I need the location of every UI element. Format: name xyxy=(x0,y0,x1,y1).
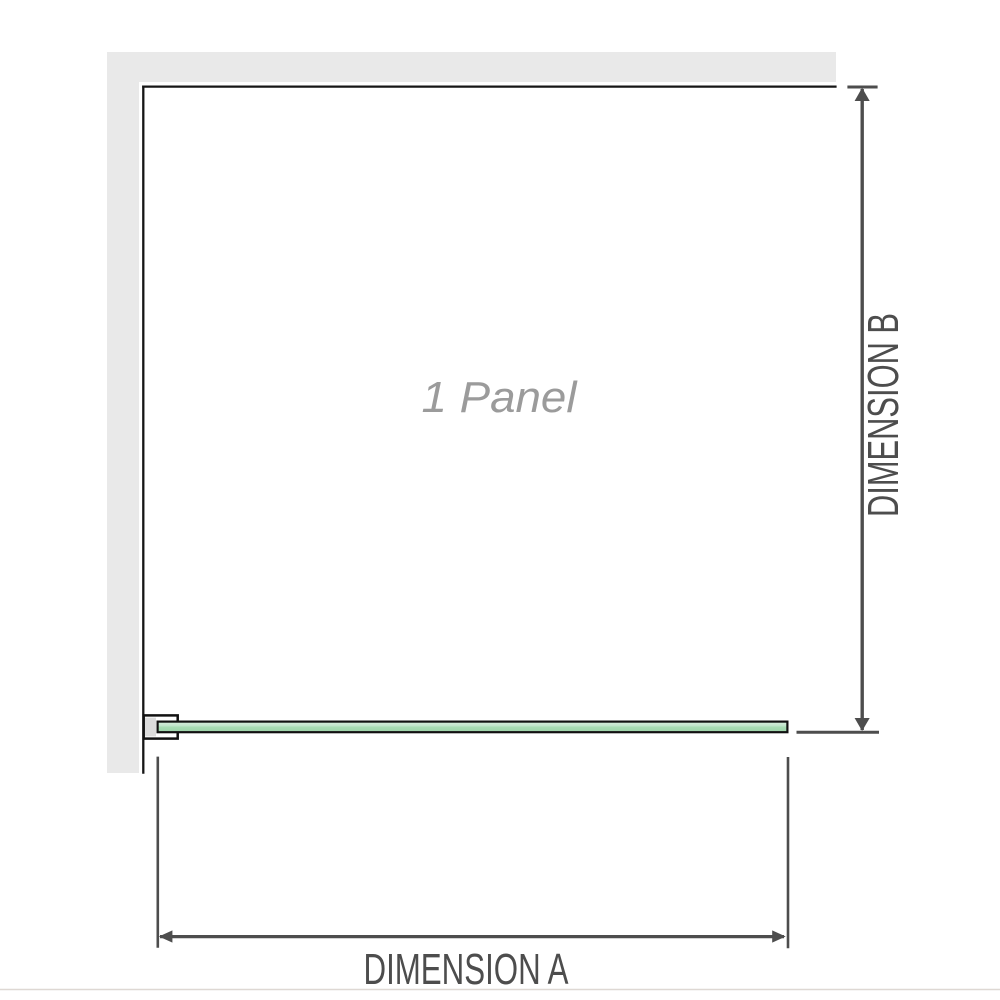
svg-text:DIMENSION B: DIMENSION B xyxy=(859,313,908,517)
svg-text:DIMENSION A: DIMENSION A xyxy=(364,945,569,994)
svg-text:1 Panel: 1 Panel xyxy=(422,373,578,422)
